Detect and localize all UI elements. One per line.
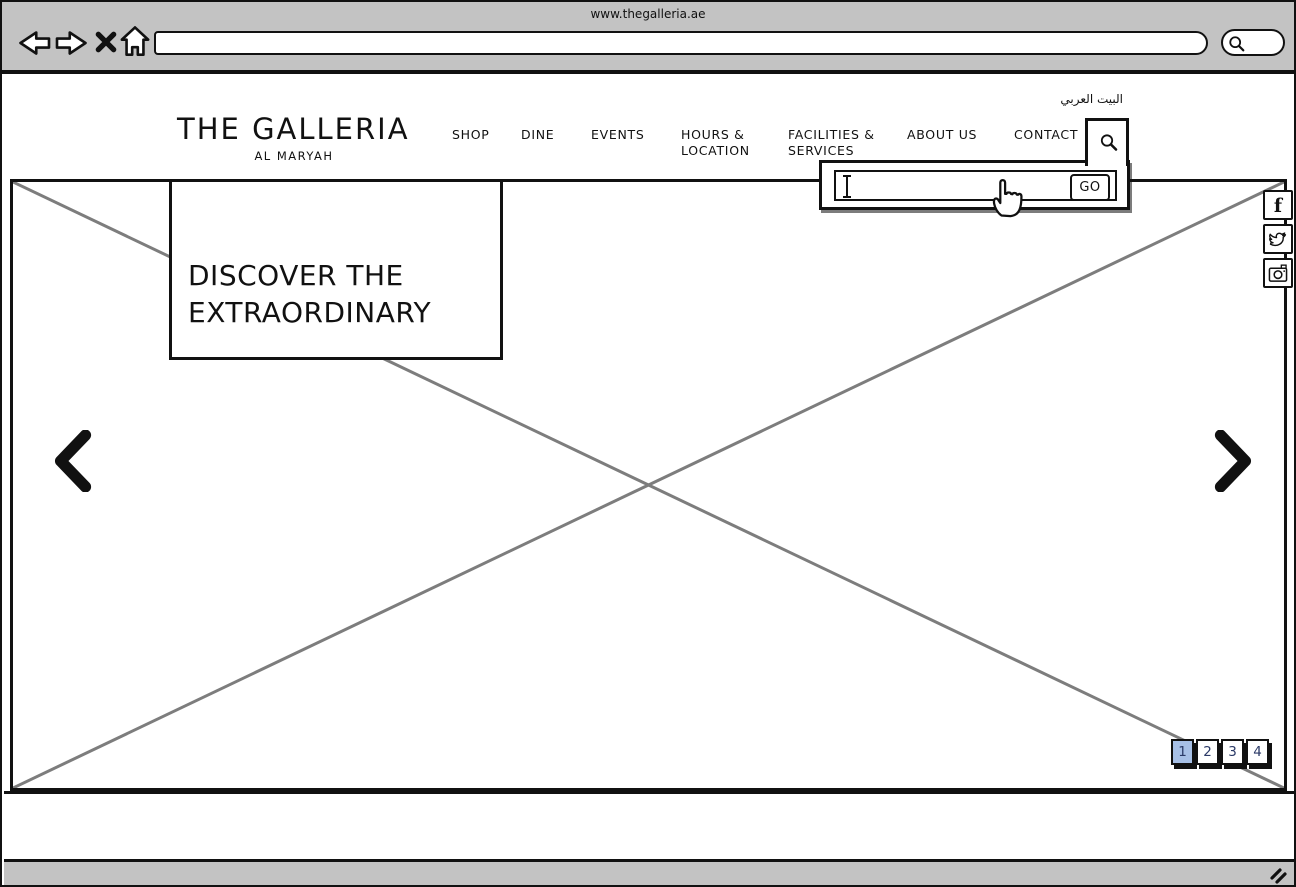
facebook-icon[interactable]: f (1263, 190, 1293, 220)
page-button-2[interactable]: 2 (1196, 739, 1219, 765)
nav-item-about-us[interactable]: ABOUT US (907, 127, 977, 143)
carousel-prev-button[interactable] (51, 430, 93, 496)
page-button-3[interactable]: 3 (1221, 739, 1244, 765)
resize-grip-icon[interactable] (1268, 867, 1288, 887)
logo-title: THE GALLERIA (177, 112, 411, 146)
hero-headline-box: DISCOVER THE EXTRAORDINARY (169, 179, 503, 360)
page-button-1[interactable]: 1 (1171, 739, 1194, 765)
carousel-pagination: 1 2 3 4 (1171, 739, 1269, 765)
chevron-left-icon (51, 430, 93, 492)
browser-bottom-bar (4, 862, 1296, 887)
search-go-button[interactable]: GO (1070, 174, 1110, 201)
twitter-icon[interactable] (1263, 224, 1293, 254)
search-icon (1228, 35, 1246, 53)
search-flyout: GO (819, 160, 1130, 210)
social-links: f (1263, 190, 1293, 288)
forward-icon[interactable] (54, 28, 90, 62)
chevron-right-icon (1213, 430, 1255, 492)
carousel-next-button[interactable] (1213, 430, 1255, 496)
url-input[interactable] (154, 31, 1208, 55)
nav-item-hours-location[interactable]: HOURS & LOCATION (681, 127, 753, 159)
page-button-4[interactable]: 4 (1246, 739, 1269, 765)
nav-item-events[interactable]: EVENTS (591, 127, 644, 143)
browser-window: www.thegalleria.ae THE GALLERIA AL MARYA… (0, 0, 1296, 887)
nav-item-contact[interactable]: CONTACT (1014, 127, 1078, 143)
hero-headline: DISCOVER THE EXTRAORDINARY (188, 257, 500, 331)
hand-cursor-icon (988, 174, 1024, 222)
logo-subtitle: AL MARYAH (177, 149, 411, 163)
site-search-toggle[interactable] (1085, 118, 1129, 166)
nav-item-dine[interactable]: DINE (521, 127, 554, 143)
text-caret-icon (846, 176, 848, 197)
page-title: www.thegalleria.ae (2, 7, 1294, 21)
site-logo[interactable]: THE GALLERIA AL MARYAH (177, 112, 411, 163)
back-icon[interactable] (16, 28, 52, 62)
instagram-icon[interactable] (1263, 258, 1293, 288)
nav-item-shop[interactable]: SHOP (452, 127, 490, 143)
browser-search-field[interactable] (1221, 29, 1285, 56)
browser-chrome: www.thegalleria.ae (2, 2, 1294, 74)
home-icon[interactable] (120, 25, 150, 62)
arabic-language-link[interactable]: البيت العربي (1060, 92, 1123, 106)
close-icon[interactable] (94, 29, 118, 59)
nav-item-facilities-services[interactable]: FACILITIES & SERVICES (788, 127, 884, 159)
search-icon (1099, 133, 1119, 153)
hero-image-placeholder: DISCOVER THE EXTRAORDINARY f (10, 179, 1287, 791)
footer-strip (4, 791, 1296, 862)
